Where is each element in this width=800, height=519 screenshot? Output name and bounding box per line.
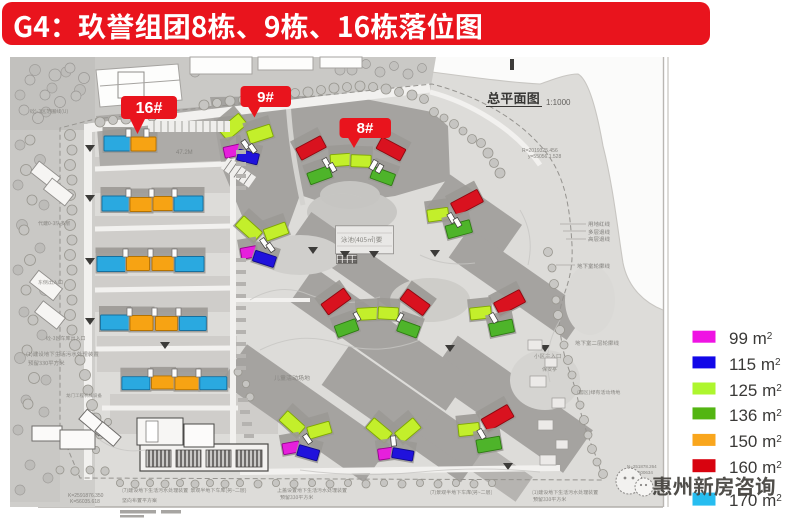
svg-text:115 m2: 115 m2 xyxy=(729,355,781,374)
svg-text:125 m2: 125 m2 xyxy=(729,381,782,400)
svg-text:136 m2: 136 m2 xyxy=(729,406,782,425)
svg-text:y=55056.1.528: y=55056.1.528 xyxy=(528,154,561,160)
svg-text:150 m2: 150 m2 xyxy=(729,432,782,451)
svg-text:9#: 9# xyxy=(257,89,274,106)
svg-text:1:1000: 1:1000 xyxy=(546,98,571,107)
svg-text:160 m2: 160 m2 xyxy=(729,458,782,477)
svg-text:170 m2: 170 m2 xyxy=(729,491,782,510)
svg-text:K=56035.618: K=56035.618 xyxy=(70,499,100,505)
svg-text:8#: 8# xyxy=(357,120,374,137)
svg-text:16#: 16# xyxy=(136,100,163,117)
svg-text:47.2M: 47.2M xyxy=(176,150,193,156)
svg-text:99 m2: 99 m2 xyxy=(729,329,773,348)
